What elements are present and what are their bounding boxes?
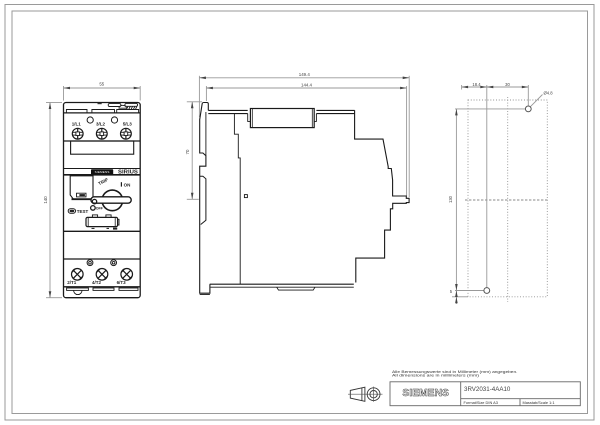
svg-text:All dimensions are in millimet: All dimensions are in millimeters (mm): [392, 373, 480, 378]
svg-text:SIEMENS: SIEMENS: [402, 388, 449, 399]
svg-text:SIEMENS: SIEMENS: [95, 170, 110, 174]
svg-text:Ø4.8: Ø4.8: [544, 91, 554, 96]
svg-text:144.4: 144.4: [301, 82, 313, 87]
svg-text:130: 130: [448, 195, 453, 203]
svg-text:3/L2: 3/L2: [96, 122, 106, 127]
svg-text:Format/Size DIN A3: Format/Size DIN A3: [464, 400, 498, 405]
svg-text:1/L1: 1/L1: [72, 122, 82, 127]
svg-text:2/T1: 2/T1: [67, 280, 77, 285]
svg-text:6/T3: 6/T3: [117, 280, 127, 285]
svg-text:SIRIUS: SIRIUS: [118, 170, 138, 176]
svg-text:55: 55: [99, 82, 104, 87]
svg-text:70: 70: [185, 149, 190, 154]
svg-text:140: 140: [43, 196, 48, 204]
svg-text:ON: ON: [124, 182, 131, 187]
svg-text:3RV2031-4AA10: 3RV2031-4AA10: [464, 386, 511, 393]
svg-text:18.4: 18.4: [472, 82, 481, 87]
svg-text:30: 30: [505, 82, 510, 87]
svg-text:Masstab/Scale 1:1: Masstab/Scale 1:1: [523, 400, 555, 405]
svg-text:5/L3: 5/L3: [123, 122, 133, 127]
svg-text:TEST: TEST: [77, 209, 89, 214]
svg-text:4/T2: 4/T2: [92, 280, 102, 285]
svg-text:149.4: 149.4: [299, 72, 311, 77]
svg-text:OFF: OFF: [96, 207, 104, 211]
